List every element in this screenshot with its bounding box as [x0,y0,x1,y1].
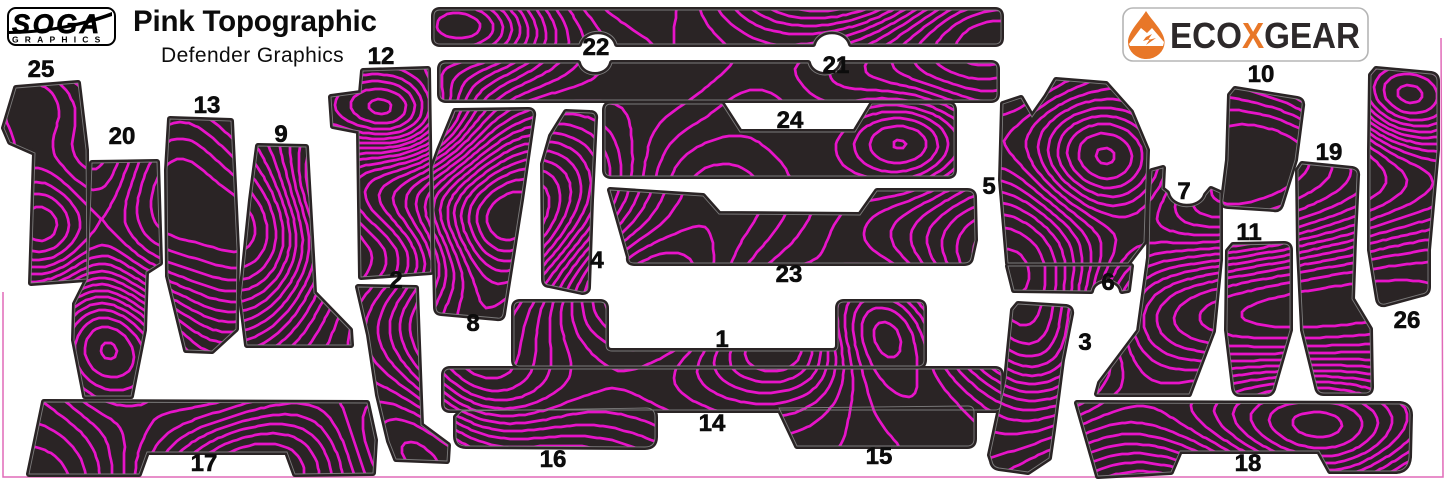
svg-text:Defender Graphics: Defender Graphics [161,44,344,67]
svg-text:24: 24 [777,107,804,134]
svg-text:20: 20 [109,123,136,150]
svg-text:11: 11 [1236,219,1261,246]
svg-text:12: 12 [368,43,395,70]
svg-text:5: 5 [982,173,995,200]
svg-text:4: 4 [590,247,604,274]
svg-text:1: 1 [715,326,728,353]
svg-text:9: 9 [274,121,287,148]
svg-text:22: 22 [583,34,610,61]
svg-text:25: 25 [28,56,55,83]
svg-text:17: 17 [191,450,218,477]
svg-text:14: 14 [699,410,726,437]
svg-text:16: 16 [540,446,567,473]
svg-text:21: 21 [823,52,850,79]
svg-text:18: 18 [1235,450,1262,477]
svg-text:10: 10 [1248,61,1275,88]
svg-text:13: 13 [194,92,221,119]
svg-text:26: 26 [1394,307,1421,334]
svg-text:3: 3 [1078,329,1091,356]
svg-text:8: 8 [466,310,479,337]
svg-text:Pink Topographic: Pink Topographic [133,5,377,38]
svg-text:2: 2 [389,267,402,294]
svg-text:15: 15 [866,443,893,470]
svg-text:23: 23 [776,261,803,288]
svg-text:6: 6 [1101,269,1114,296]
svg-text:GRAPHICS: GRAPHICS [12,35,106,45]
svg-text:19: 19 [1316,139,1343,166]
svg-text:7: 7 [1177,178,1190,205]
svg-text:ECOXGEAR: ECOXGEAR [1170,15,1360,56]
